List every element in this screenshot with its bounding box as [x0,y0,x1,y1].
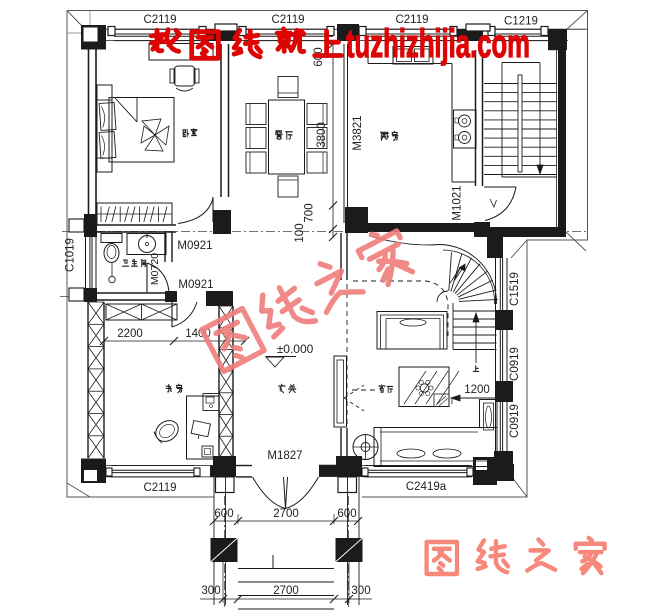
svg-text:M0921: M0921 [178,279,213,291]
svg-text:C1519: C1519 [509,272,521,306]
svg-text:700: 700 [304,203,316,222]
svg-text:300: 300 [201,585,220,597]
svg-text:C2119: C2119 [143,14,176,26]
svg-text:600: 600 [214,508,233,520]
svg-text:C1019: C1019 [65,238,77,272]
svg-text:M0921: M0921 [177,240,212,252]
svg-text:M1021: M1021 [452,185,464,220]
svg-text:C0919: C0919 [509,404,521,438]
svg-text:2700: 2700 [273,585,299,597]
svg-text:tuzhizhijia.com: tuzhizhijia.com [346,22,530,66]
svg-text:1200: 1200 [464,384,490,396]
svg-text:C2419a: C2419a [406,481,447,493]
svg-text:100: 100 [294,223,306,242]
svg-text:C2119: C2119 [271,14,304,26]
svg-text:2200: 2200 [117,328,143,340]
svg-text:M1827: M1827 [267,450,302,462]
svg-text:3800: 3800 [316,122,328,148]
svg-text:C0919: C0919 [509,347,521,381]
svg-text:M3821: M3821 [352,115,364,150]
svg-text:M0720: M0720 [149,253,161,285]
svg-text:C2119: C2119 [143,482,176,494]
svg-text:2700: 2700 [273,508,299,520]
svg-text:600: 600 [337,508,356,520]
svg-text:300: 300 [351,585,370,597]
svg-text:±0.000: ±0.000 [277,342,314,356]
